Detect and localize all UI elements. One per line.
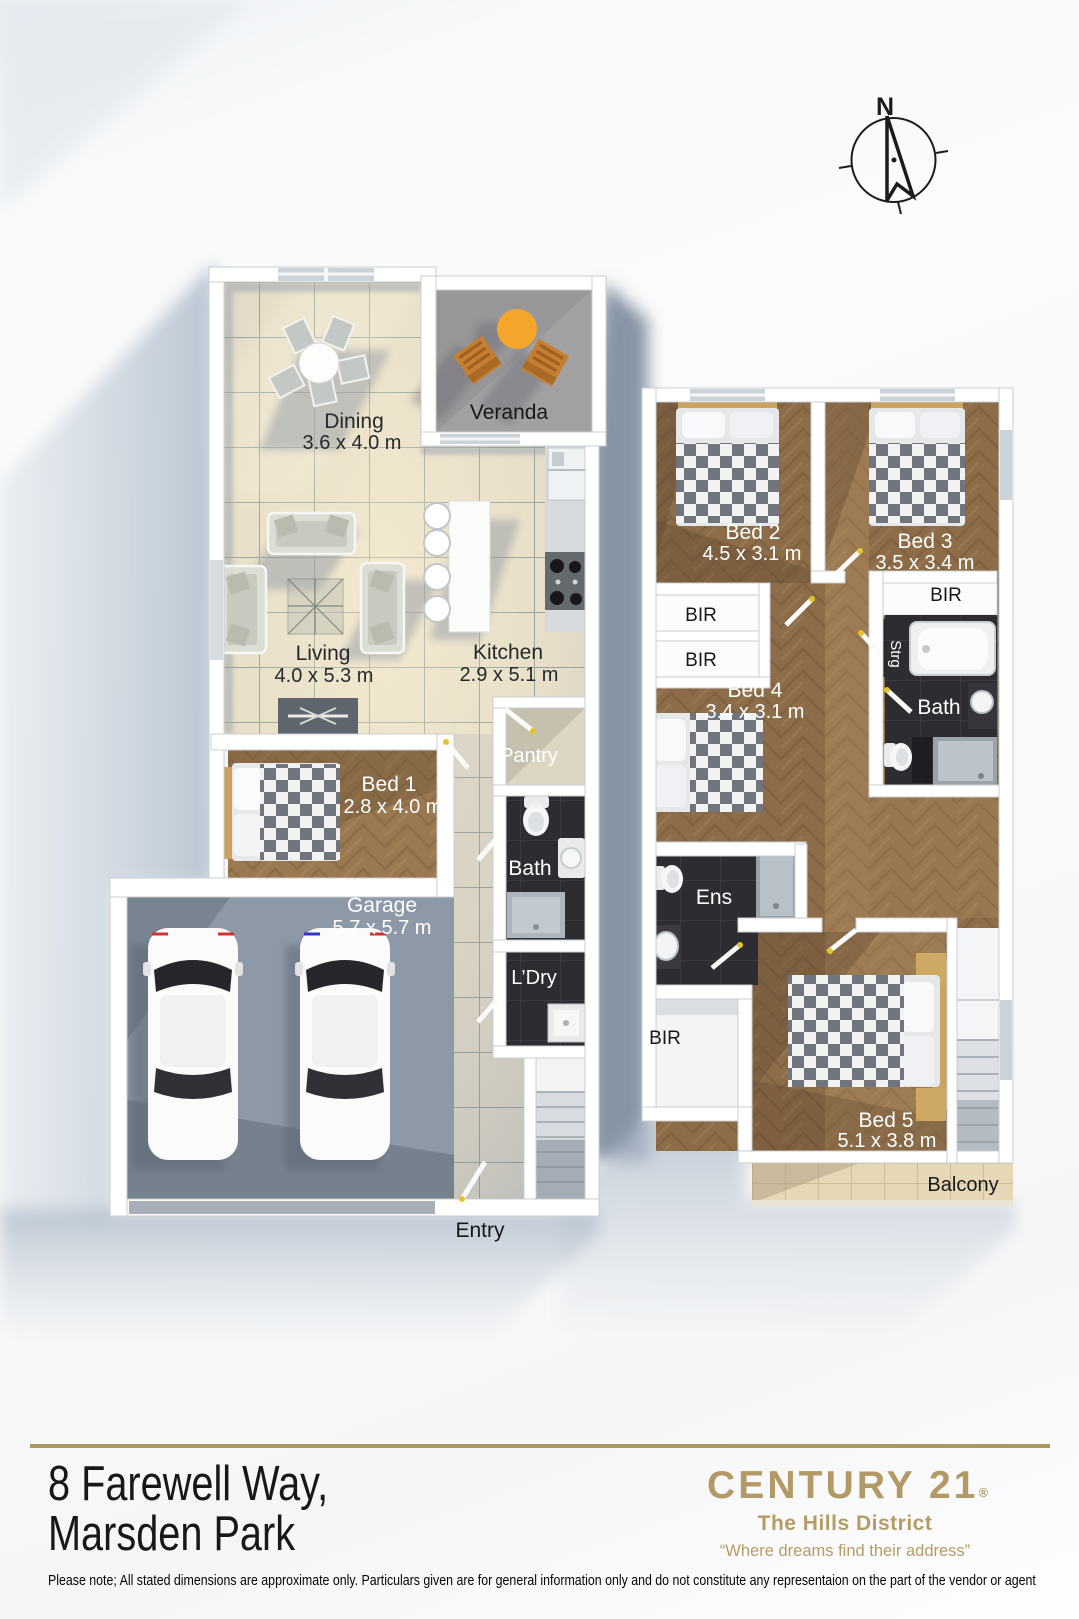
svg-text:Bath: Bath	[508, 857, 551, 880]
svg-text:Bed 2: Bed 2	[726, 521, 781, 544]
svg-text:Veranda: Veranda	[470, 401, 549, 424]
svg-text:Entry: Entry	[455, 1219, 505, 1242]
svg-text:4.0 x 5.3 m: 4.0 x 5.3 m	[275, 665, 374, 687]
svg-text:Pantry: Pantry	[500, 745, 558, 767]
svg-text:5.7 x 5.7 m: 5.7 x 5.7 m	[333, 917, 432, 939]
svg-text:L’Dry: L’Dry	[511, 967, 557, 989]
svg-text:Balcony: Balcony	[927, 1174, 998, 1196]
svg-text:3.5 x 3.4 m: 3.5 x 3.4 m	[876, 552, 975, 574]
svg-text:2.9 x 5.1 m: 2.9 x 5.1 m	[460, 664, 559, 686]
svg-text:Living: Living	[296, 642, 351, 665]
svg-text:BIR: BIR	[685, 650, 717, 671]
svg-text:3.6 x 4.0 m: 3.6 x 4.0 m	[303, 432, 402, 454]
svg-text:2.8 x 4.0 m: 2.8 x 4.0 m	[344, 796, 443, 818]
svg-text:Strg: Strg	[887, 640, 904, 668]
svg-text:Bed 4: Bed 4	[728, 679, 783, 702]
svg-text:Dining: Dining	[324, 410, 384, 433]
svg-text:BIR: BIR	[649, 1028, 681, 1049]
svg-text:5.1 x 3.8 m: 5.1 x 3.8 m	[838, 1130, 937, 1152]
svg-text:BIR: BIR	[930, 585, 962, 606]
svg-text:Bed 3: Bed 3	[898, 530, 953, 553]
svg-text:3.4 x 3.1 m: 3.4 x 3.1 m	[706, 701, 805, 723]
svg-text:Garage: Garage	[347, 894, 417, 917]
svg-text:4.5 x 3.1 m: 4.5 x 3.1 m	[703, 543, 802, 565]
svg-text:N: N	[876, 93, 894, 121]
svg-text:Bed 1: Bed 1	[362, 773, 417, 796]
svg-text:Bath: Bath	[917, 696, 960, 719]
svg-text:Ens: Ens	[696, 886, 732, 909]
svg-text:Bed 5: Bed 5	[859, 1109, 914, 1132]
svg-text:BIR: BIR	[685, 605, 717, 626]
svg-text:Kitchen: Kitchen	[473, 641, 543, 664]
